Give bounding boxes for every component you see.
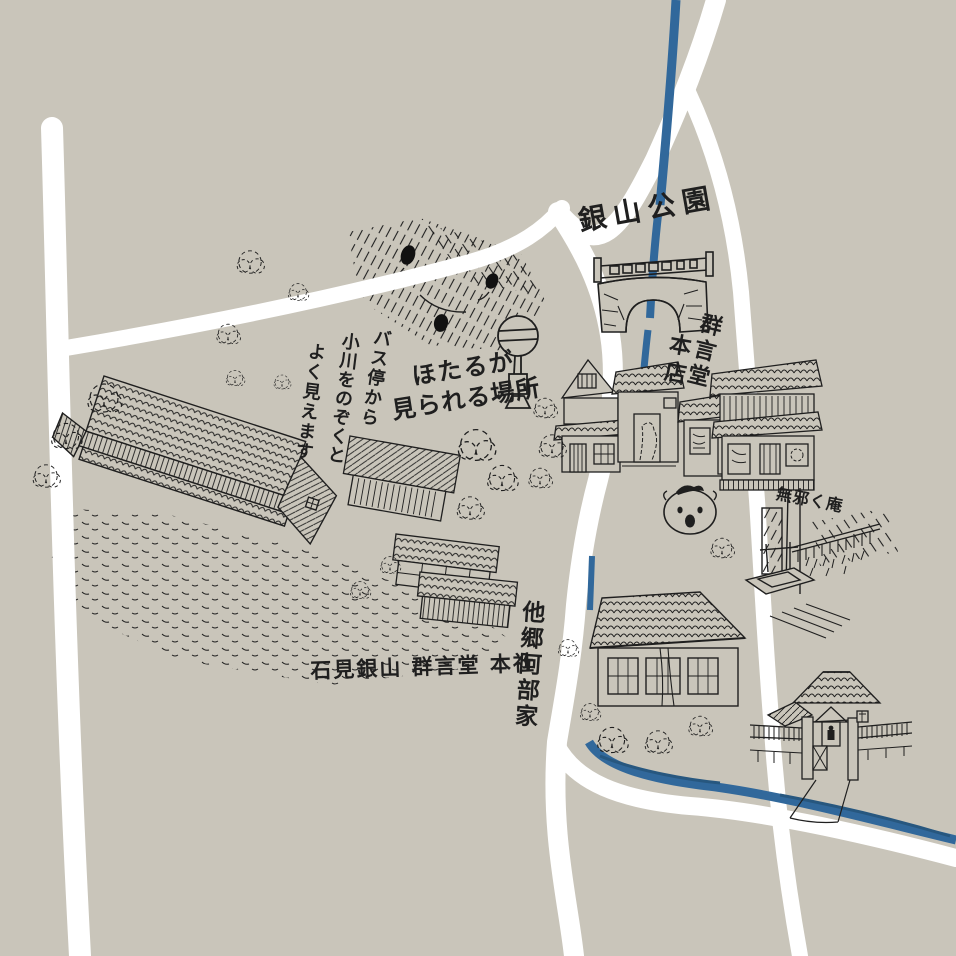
map-artwork xyxy=(0,0,956,956)
illustrated-map: 銀山公園 群言堂 本店 ほたるが 見られる場所 バス停から 小川をのぞくと よく… xyxy=(0,0,956,956)
gungendo-honten-building xyxy=(710,360,822,490)
